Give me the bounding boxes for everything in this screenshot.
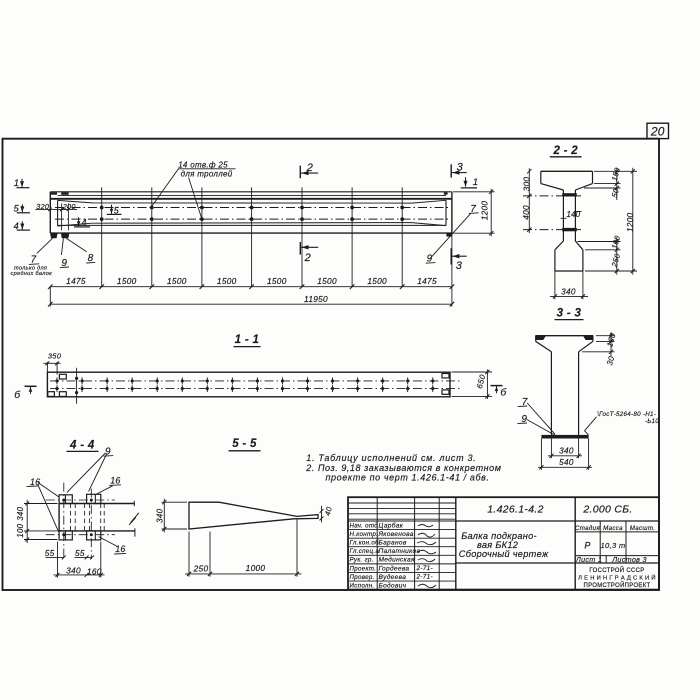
svg-text:100: 100 bbox=[16, 523, 25, 537]
svg-text:Вудеева: Вудеева bbox=[379, 573, 407, 581]
svg-text:1500: 1500 bbox=[117, 276, 137, 286]
svg-text:Гл.спец.а: Гл.спец.а bbox=[350, 548, 380, 555]
svg-text:1 - 1: 1 - 1 bbox=[235, 334, 260, 346]
svg-text:Сборочный чертеж: Сборочный чертеж bbox=[459, 549, 549, 559]
svg-text:2: 2 bbox=[304, 252, 311, 264]
svg-text:Гордеева: Гордеева bbox=[379, 564, 410, 572]
svg-text:3 - 3: 3 - 3 bbox=[557, 308, 582, 320]
svg-text:˥ГосТ-5264-80 -Н1-: ˥ГосТ-5264-80 -Н1- bbox=[597, 411, 657, 418]
svg-text:Проект.: Проект. bbox=[350, 565, 377, 572]
svg-text:340: 340 bbox=[561, 288, 576, 297]
svg-text:Стадия: Стадия bbox=[575, 525, 600, 532]
svg-text:1475: 1475 bbox=[417, 276, 437, 286]
svg-text:Н.контр.: Н.контр. bbox=[350, 531, 379, 538]
svg-text:для троллей: для троллей bbox=[181, 169, 233, 178]
svg-text:2: 2 bbox=[306, 162, 313, 174]
svg-text:340: 340 bbox=[155, 508, 164, 522]
svg-text:1000: 1000 bbox=[246, 563, 266, 573]
svg-text:1: 1 bbox=[14, 178, 20, 189]
svg-text:Р: Р bbox=[584, 541, 590, 551]
svg-text:1500: 1500 bbox=[167, 276, 187, 286]
svg-text:ГОССТРОЙ СССР: ГОССТРОЙ СССР bbox=[589, 566, 644, 574]
svg-text:Царбак: Царбак bbox=[379, 521, 404, 529]
svg-text:1500: 1500 bbox=[367, 276, 387, 286]
svg-text:1200: 1200 bbox=[481, 201, 490, 221]
svg-text:5: 5 bbox=[114, 205, 120, 215]
svg-text:2. Поз. 9,18 заказываются в ко: 2. Поз. 9,18 заказываются в конкретном bbox=[305, 463, 501, 473]
svg-text:4: 4 bbox=[14, 221, 20, 232]
svg-text:1.426.1-4.2: 1.426.1-4.2 bbox=[487, 503, 543, 515]
svg-text:Л Е Н И Н Г Р А Д С К И Й: Л Е Н И Н Г Р А Д С К И Й bbox=[578, 574, 656, 582]
svg-text:Яковенова: Яковенова bbox=[378, 531, 414, 538]
svg-text:5 - 5: 5 - 5 bbox=[232, 438, 257, 450]
svg-text:350: 350 bbox=[48, 352, 62, 361]
svg-text:Масшт.: Масшт. bbox=[630, 525, 656, 532]
svg-text:3: 3 bbox=[457, 161, 464, 173]
svg-text:1. Таблицу исполнений см. лис: 1. Таблицу исполнений см. лист 3. bbox=[306, 453, 476, 463]
svg-text:Бодович: Бодович bbox=[379, 581, 407, 589]
svg-text:-Ь10: -Ь10 bbox=[645, 418, 659, 425]
svg-text:11950: 11950 bbox=[304, 294, 328, 304]
svg-text:Нач. отд: Нач. отд bbox=[350, 522, 379, 529]
svg-text:16: 16 bbox=[110, 476, 120, 486]
svg-text:4: 4 bbox=[82, 218, 87, 228]
svg-text:средних балок: средних балок bbox=[11, 271, 53, 277]
svg-text:Рук. гр.: Рук. гр. bbox=[350, 557, 374, 564]
svg-text:16: 16 bbox=[30, 477, 40, 487]
svg-text:1500: 1500 bbox=[267, 276, 287, 286]
svg-text:б: б bbox=[500, 386, 507, 398]
svg-text:340: 340 bbox=[66, 566, 81, 576]
svg-text:ПРОМСТРОЙПРОЕКТ: ПРОМСТРОЙПРОЕКТ bbox=[583, 581, 650, 589]
svg-text:55: 55 bbox=[75, 548, 85, 558]
svg-text:Масса: Масса bbox=[603, 525, 623, 532]
svg-text:Мединская: Мединская bbox=[379, 556, 416, 564]
svg-text:Провер.: Провер. bbox=[350, 574, 375, 581]
svg-text:Листов 3: Листов 3 bbox=[611, 555, 647, 564]
svg-text:300: 300 bbox=[522, 177, 531, 192]
svg-text:Исполн.: Исполн. bbox=[350, 582, 375, 589]
svg-text:1200: 1200 bbox=[626, 212, 635, 232]
svg-text:160: 160 bbox=[87, 567, 102, 577]
svg-text:б: б bbox=[14, 389, 21, 401]
svg-text:1475: 1475 bbox=[66, 276, 86, 286]
svg-text:2.000 СБ.: 2.000 СБ. bbox=[582, 503, 632, 515]
svg-text:Палатников: Палатников bbox=[379, 548, 421, 555]
svg-text:400: 400 bbox=[522, 205, 531, 220]
svg-text:Гл.кон.об: Гл.кон.об bbox=[350, 540, 380, 547]
svg-text:1: 1 bbox=[473, 177, 479, 188]
svg-text:2 - 2: 2 - 2 bbox=[552, 145, 578, 157]
svg-text:1500: 1500 bbox=[217, 276, 237, 286]
svg-text:1500: 1500 bbox=[317, 276, 337, 286]
svg-text:340: 340 bbox=[559, 446, 574, 455]
svg-text:10,3 т: 10,3 т bbox=[600, 541, 625, 550]
svg-text:14 отв.ф 25: 14 отв.ф 25 bbox=[178, 160, 228, 169]
svg-text:340: 340 bbox=[16, 506, 25, 520]
svg-text:2-71-: 2-71- bbox=[416, 574, 433, 581]
svg-text:Лист 1: Лист 1 bbox=[575, 555, 602, 564]
svg-text:4 - 4: 4 - 4 bbox=[69, 439, 95, 451]
svg-text:3: 3 bbox=[456, 260, 463, 272]
svg-text:2-71-: 2-71- bbox=[416, 565, 433, 572]
svg-text:250: 250 bbox=[193, 564, 209, 574]
svg-text:540: 540 bbox=[559, 458, 574, 467]
svg-text:5: 5 bbox=[14, 204, 20, 215]
svg-text:55: 55 bbox=[45, 548, 55, 558]
svg-text:проекте по черт 1.426.1-41: проекте по черт 1.426.1-41 / абв. bbox=[326, 473, 490, 483]
svg-text:20: 20 bbox=[650, 125, 665, 139]
svg-text:Баранов: Баранов bbox=[379, 540, 407, 547]
